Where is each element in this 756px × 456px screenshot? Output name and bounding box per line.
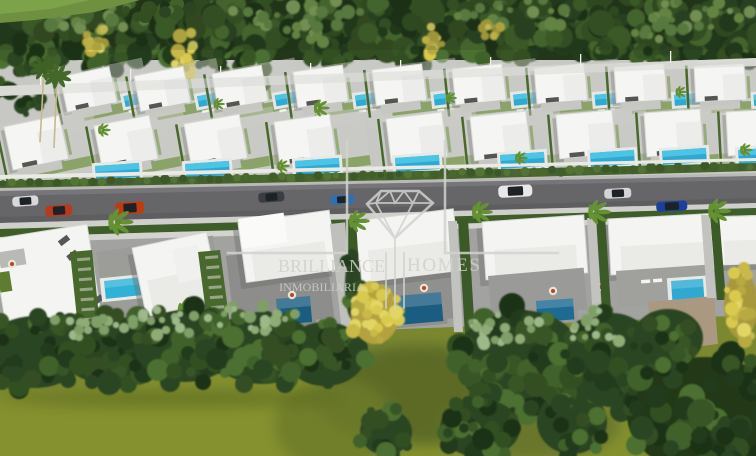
svg-text:BRILLIANCE: BRILLIANCE <box>278 256 385 276</box>
svg-text:HOMES: HOMES <box>407 255 482 276</box>
svg-text:INMOBILIARIA: INMOBILIARIA <box>279 280 365 294</box>
